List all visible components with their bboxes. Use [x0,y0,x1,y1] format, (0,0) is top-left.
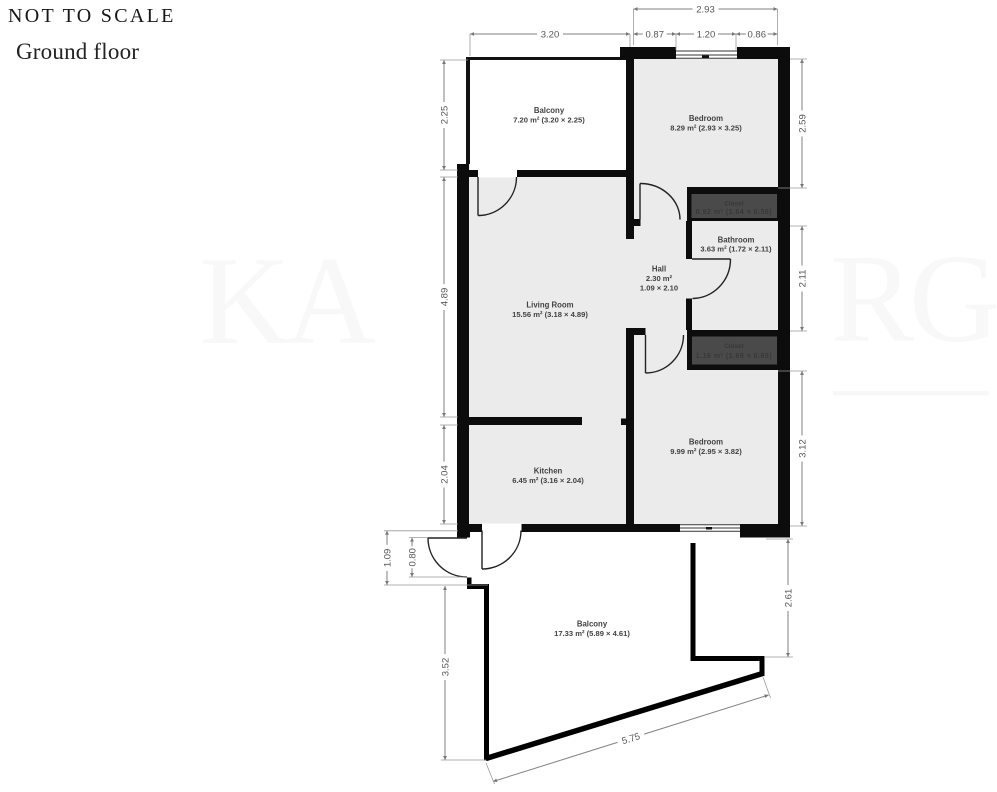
svg-text:9.99 m² (2.95 × 3.82): 9.99 m² (2.95 × 3.82) [670,447,742,456]
svg-text:NOT TO SCALE: NOT TO SCALE [8,5,176,27]
svg-text:3.12: 3.12 [798,439,809,458]
svg-text:3.63 m² (1.72 × 2.11): 3.63 m² (1.72 × 2.11) [700,245,772,254]
svg-text:0.87: 0.87 [646,30,665,41]
svg-text:3.52: 3.52 [441,658,452,677]
svg-text:Closet: Closet [724,343,744,350]
svg-text:Balcony: Balcony [577,620,608,629]
svg-text:7.20 m² (3.20 × 2.25): 7.20 m² (3.20 × 2.25) [513,116,585,125]
svg-text:Balcony: Balcony [534,106,565,115]
svg-text:0.80: 0.80 [408,548,419,567]
svg-text:2.11: 2.11 [798,270,809,288]
svg-text:Closet: Closet [724,201,744,208]
svg-text:Bedroom: Bedroom [689,114,723,123]
svg-text:0.92 m² (1.64 × 0.56): 0.92 m² (1.64 × 0.56) [696,209,772,216]
svg-text:17.33 m² (5.89 × 4.61): 17.33 m² (5.89 × 4.61) [554,629,630,638]
svg-text:4.89: 4.89 [440,288,451,307]
svg-text:1.09 × 2.10: 1.09 × 2.10 [640,284,678,293]
svg-text:KA: KA [199,232,376,371]
svg-text:3.20: 3.20 [541,30,560,41]
svg-text:0.86: 0.86 [748,30,767,41]
svg-text:1.09: 1.09 [383,549,394,568]
svg-text:1.16 m² (1.69 × 0.69): 1.16 m² (1.69 × 0.69) [696,353,772,360]
svg-text:2.30 m²: 2.30 m² [646,274,673,283]
svg-text:1.20: 1.20 [697,30,716,41]
svg-text:Living Room: Living Room [526,301,573,310]
svg-text:Bedroom: Bedroom [689,438,723,447]
svg-text:2.25: 2.25 [440,106,451,125]
svg-text:2.93: 2.93 [696,5,715,16]
svg-text:15.56 m² (3.18 × 4.89): 15.56 m² (3.18 × 4.89) [512,310,588,319]
svg-text:2.04: 2.04 [440,465,451,484]
svg-text:2.61: 2.61 [784,589,795,608]
svg-text:Kitchen: Kitchen [534,467,563,476]
svg-text:5.75: 5.75 [621,731,642,747]
svg-text:RG: RG [830,230,997,369]
svg-text:2.59: 2.59 [798,114,809,133]
svg-text:6.45 m² (3.16 × 2.04): 6.45 m² (3.16 × 2.04) [512,476,584,485]
svg-text:Bathroom: Bathroom [718,236,755,245]
svg-text:Ground floor: Ground floor [16,39,139,64]
svg-text:Hall: Hall [652,265,666,274]
svg-text:8.29 m² (2.93 × 3.25): 8.29 m² (2.93 × 3.25) [670,124,742,133]
